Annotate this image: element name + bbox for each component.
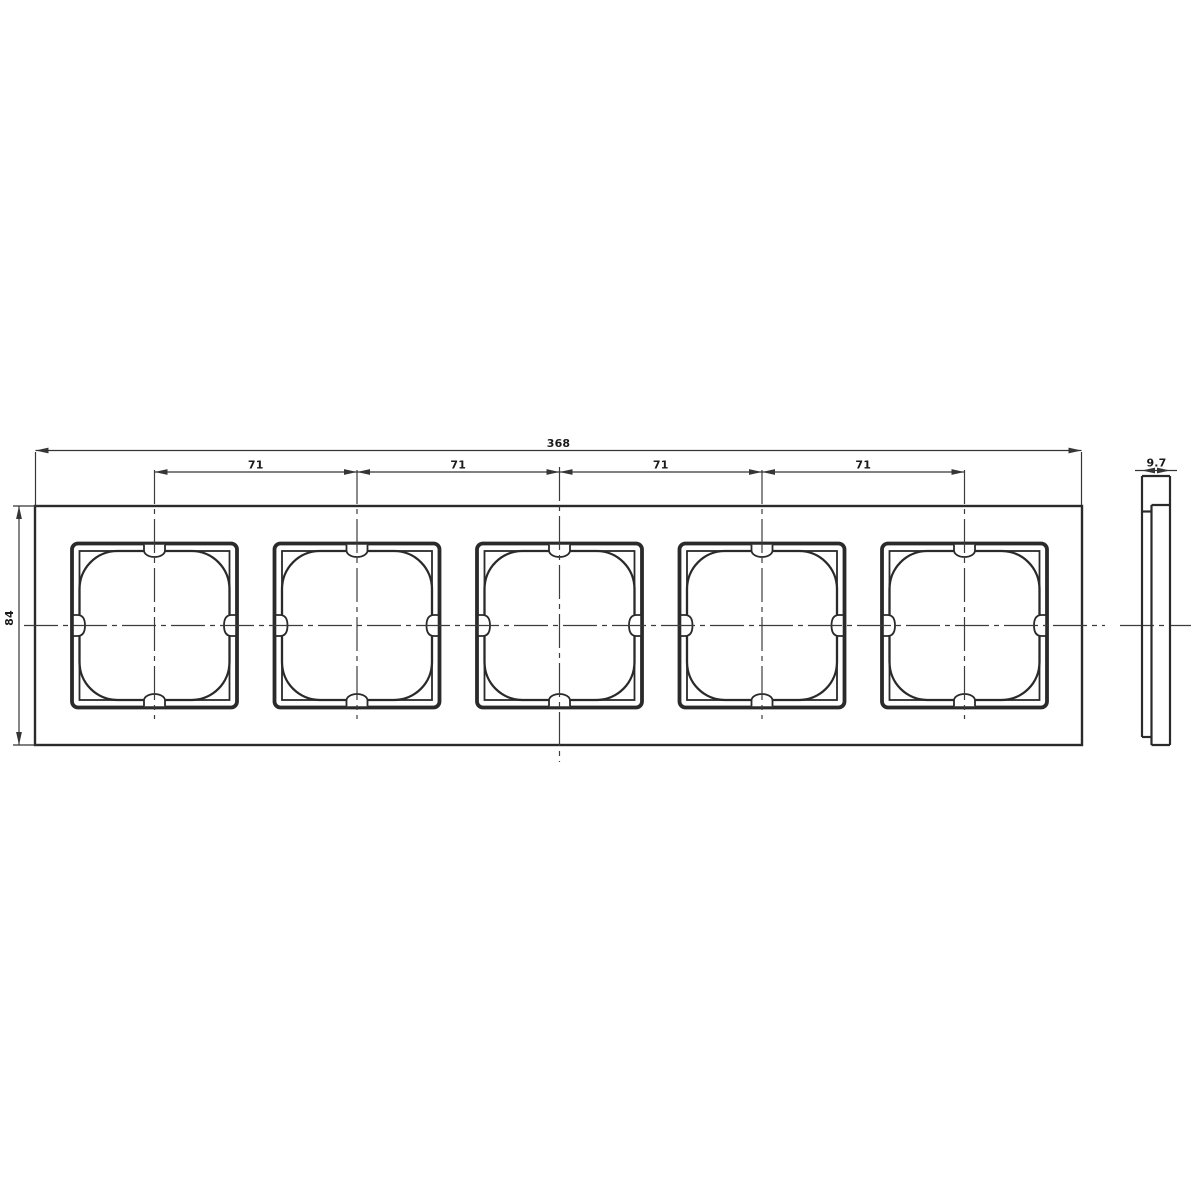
- dim-spacing-arrow-left-2: [357, 469, 370, 475]
- dim-spacing-arrow-right-4: [952, 469, 965, 475]
- dim-overall-width-label: 368: [547, 437, 571, 450]
- dim-height-label: 84: [3, 610, 16, 626]
- dim-spacing-arrow-left-1: [155, 469, 168, 475]
- dim-spacing-arrow-left-4: [762, 469, 775, 475]
- dim-spacing-arrow-right-3: [749, 469, 762, 475]
- technical-drawing-page: 368 71 71 71 71 84 9.7: [0, 0, 1200, 1200]
- dim-spacing-arrow-right-2: [547, 469, 560, 475]
- dim-spacing-label-3: 71: [653, 459, 669, 472]
- drawing-geometry: [13, 448, 1191, 762]
- dim-depth-label: 9.7: [1146, 457, 1166, 470]
- dim-height-arrow-top: [16, 506, 22, 519]
- dim-spacing-label-4: 71: [855, 459, 871, 472]
- dim-spacing-label-2: 71: [450, 459, 466, 472]
- technical-drawing-canvas: 368 71 71 71 71 84 9.7: [0, 0, 1200, 1200]
- dim-height-arrow-bottom: [16, 732, 22, 745]
- dim-spacing-arrow-left-3: [560, 469, 573, 475]
- dim-overall-width-arrow-right: [1069, 448, 1082, 454]
- dim-spacing-arrow-right-1: [344, 469, 357, 475]
- dim-spacing-label-1: 71: [248, 459, 264, 472]
- dim-overall-width-arrow-left: [36, 448, 49, 454]
